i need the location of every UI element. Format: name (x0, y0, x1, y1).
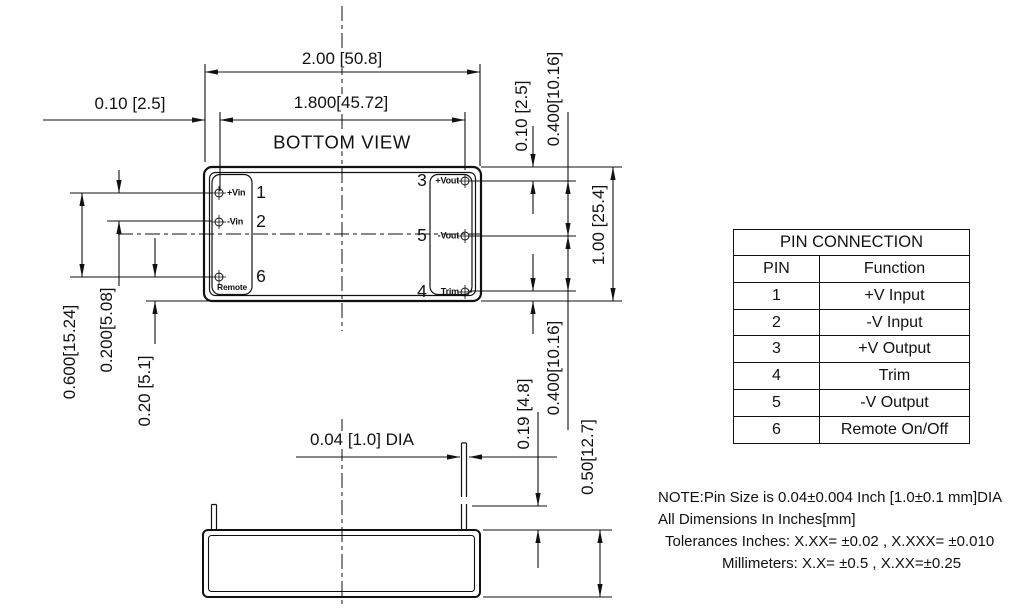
function-cell: -V Input (820, 310, 969, 336)
note-line-4: Millimeters: X.X= ±0.5 , X.XX=±0.25 (658, 553, 1023, 575)
pin-label-vin-plus: +Vin (227, 188, 245, 197)
dim-pin-length: 0.19 [4.8] (515, 377, 533, 452)
dim-pin-diameter: 0.04 [1.0] DIA (308, 431, 416, 449)
technical-drawing: 2.00 [50.8] 1.800[45.72] 0.10 [2.5] BOTT… (0, 0, 1028, 612)
pin-label-vout-minus: -Vout (438, 231, 459, 240)
pin-table-title: PIN CONNECTION (734, 230, 969, 256)
dim-body-height: 1.00 [25.4] (590, 183, 608, 267)
pin-number-3: 3 (415, 171, 429, 189)
pin-number-4: 4 (415, 282, 429, 300)
table-row: 6 Remote On/Off (734, 417, 969, 443)
table-row: 1 +V Input (734, 283, 969, 310)
function-cell: Remote On/Off (820, 417, 969, 443)
pin-number-1: 1 (254, 183, 268, 201)
dim-left-pin-pitch: 0.200[5.08] (98, 285, 116, 374)
pin-table-col-function: Function (820, 256, 969, 282)
pin-number-5: 5 (415, 226, 429, 244)
pin-number-2: 2 (254, 212, 268, 230)
pin-cell: 3 (734, 336, 820, 362)
pin-label-remote: Remote (217, 283, 247, 292)
bottom-view-title: BOTTOM VIEW (271, 132, 413, 151)
table-row: 3 +V Output (734, 336, 969, 363)
dim-left-bottom-offset: 0.20 [5.1] (136, 354, 154, 429)
pin-label-vout-plus: +Vout (435, 176, 459, 185)
pin-cell: 4 (734, 363, 820, 389)
pin-cell: 2 (734, 310, 820, 336)
pin-label-vin-minus: -Vin (227, 217, 243, 226)
dim-case-height: 0.50[12.7] (579, 417, 597, 497)
note-line-3: Tolerances Inches: X.XX= ±0.02 , X.XXX= … (658, 531, 1023, 553)
function-cell: Trim (820, 363, 969, 389)
table-row: 5 -V Output (734, 390, 969, 417)
side-view-pins (212, 443, 467, 530)
dim-body-width: 2.00 [50.8] (300, 50, 384, 68)
table-row: 2 -V Input (734, 310, 969, 337)
drawing-notes: NOTE:Pin Size is 0.04±0.004 Inch [1.0±0.… (658, 487, 1023, 575)
table-row: 4 Trim (734, 363, 969, 390)
dim-right-top-margin: 0.10 [2.5] (513, 79, 531, 154)
note-line-2: All Dimensions In Inches[mm] (658, 509, 1023, 531)
pin-table-header-row: PIN Function (734, 256, 969, 283)
dim-right-pitch-upper: 0.400[10.16] (545, 50, 563, 149)
note-line-1: NOTE:Pin Size is 0.04±0.004 Inch [1.0±0.… (658, 487, 1023, 509)
dim-left-pin-margin: 0.10 [2.5] (93, 95, 168, 113)
pin-number-6: 6 (254, 267, 268, 285)
dim-right-pitch-lower: 0.400[10.16] (545, 319, 563, 418)
pin-table-col-pin: PIN (734, 256, 820, 282)
function-cell: +V Input (820, 283, 969, 309)
pin-cell: 1 (734, 283, 820, 309)
dim-left-pin-span: 0.600[15.24] (61, 303, 79, 402)
pin-connection-table: PIN CONNECTION PIN Function 1 +V Input 2… (733, 229, 970, 444)
function-cell: +V Output (820, 336, 969, 362)
function-cell: -V Output (820, 390, 969, 416)
pin-label-trim: Trim (441, 287, 459, 296)
dim-pin-span: 1.800[45.72] (292, 94, 391, 112)
pin-cell: 6 (734, 417, 820, 443)
pin-cell: 5 (734, 390, 820, 416)
